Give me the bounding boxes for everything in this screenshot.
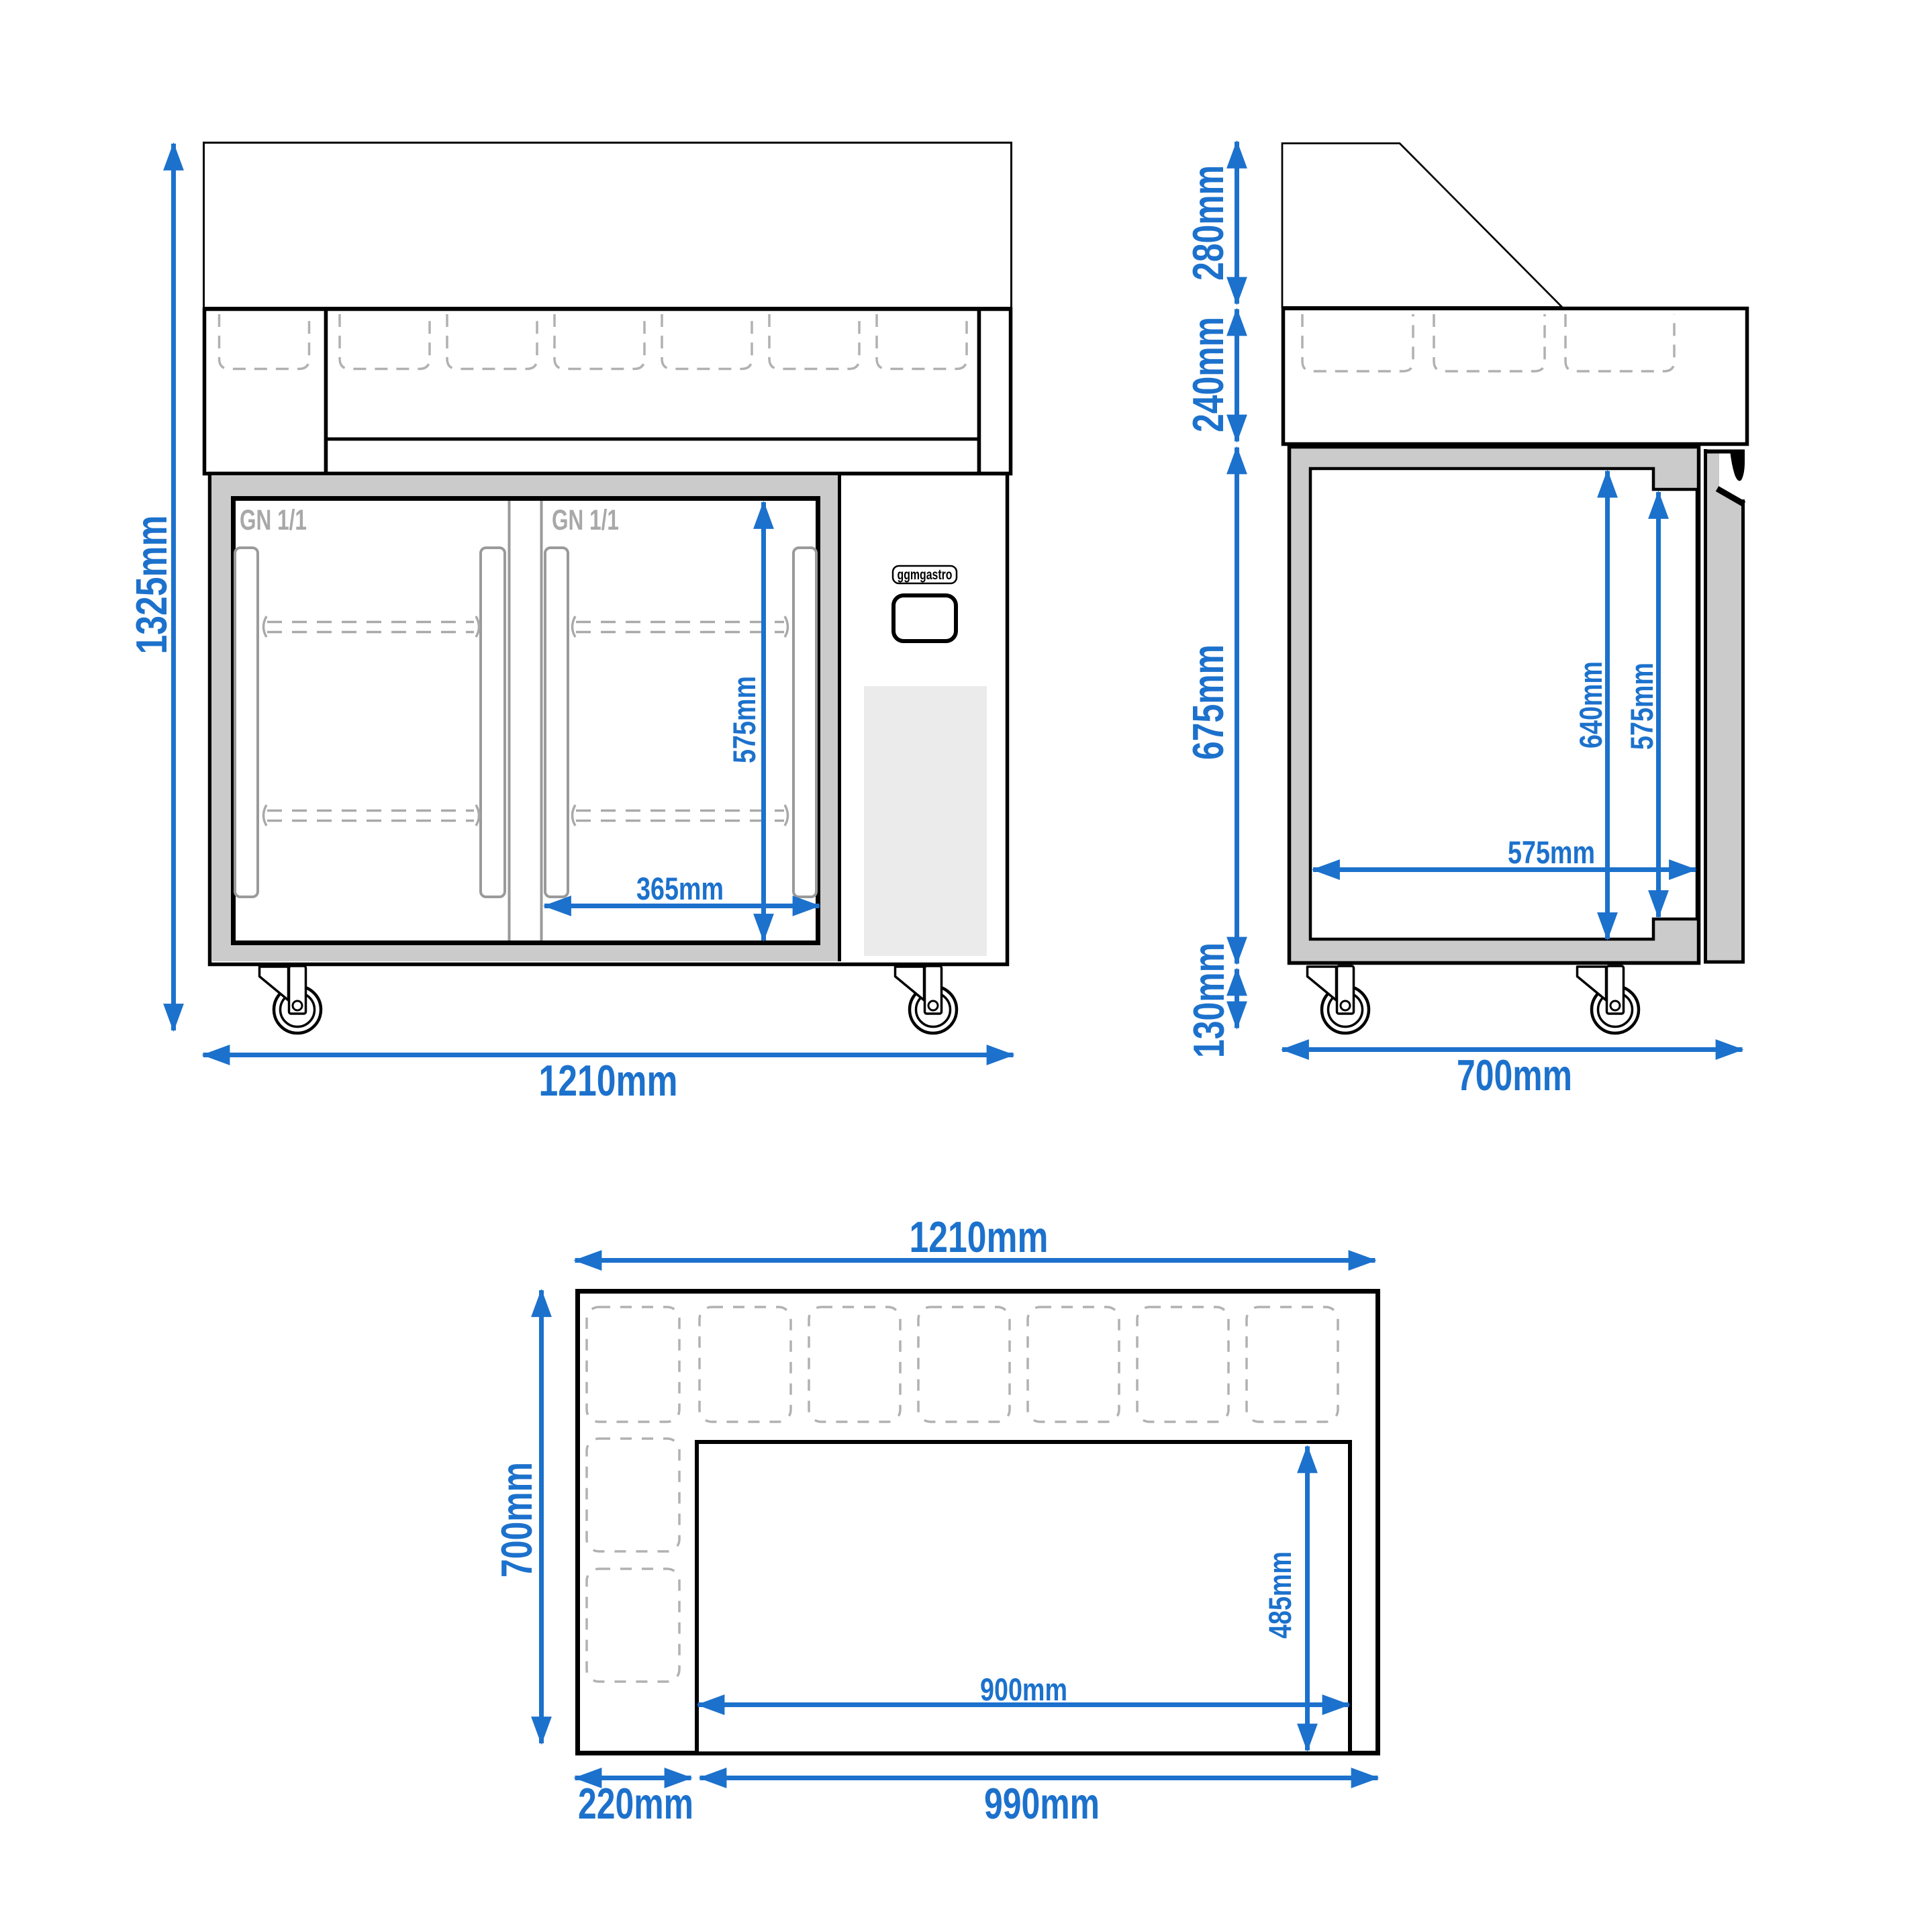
svg-text:GN 1/1: GN 1/1 bbox=[552, 504, 619, 536]
svg-text:990mm: 990mm bbox=[984, 1779, 1100, 1828]
svg-text:GN 1/1: GN 1/1 bbox=[240, 504, 307, 536]
svg-text:900mm: 900mm bbox=[980, 1672, 1067, 1707]
svg-text:575mm: 575mm bbox=[1508, 834, 1595, 870]
svg-text:675mm: 675mm bbox=[1184, 644, 1233, 760]
svg-text:1325mm: 1325mm bbox=[127, 516, 176, 655]
svg-text:ggmgastro: ggmgastro bbox=[898, 567, 953, 583]
svg-text:575mm: 575mm bbox=[726, 676, 762, 763]
svg-text:130mm: 130mm bbox=[1184, 943, 1233, 1058]
svg-text:220mm: 220mm bbox=[578, 1779, 693, 1828]
svg-text:700mm: 700mm bbox=[1457, 1051, 1572, 1100]
svg-text:1210mm: 1210mm bbox=[910, 1212, 1049, 1261]
svg-text:365mm: 365mm bbox=[636, 871, 724, 906]
svg-text:640mm: 640mm bbox=[1573, 661, 1608, 748]
svg-text:1210mm: 1210mm bbox=[539, 1056, 678, 1105]
svg-text:700mm: 700mm bbox=[492, 1462, 541, 1578]
svg-text:280mm: 280mm bbox=[1184, 165, 1233, 281]
svg-text:240mm: 240mm bbox=[1184, 317, 1233, 432]
svg-text:485mm: 485mm bbox=[1262, 1551, 1298, 1639]
svg-text:575mm: 575mm bbox=[1624, 663, 1659, 750]
